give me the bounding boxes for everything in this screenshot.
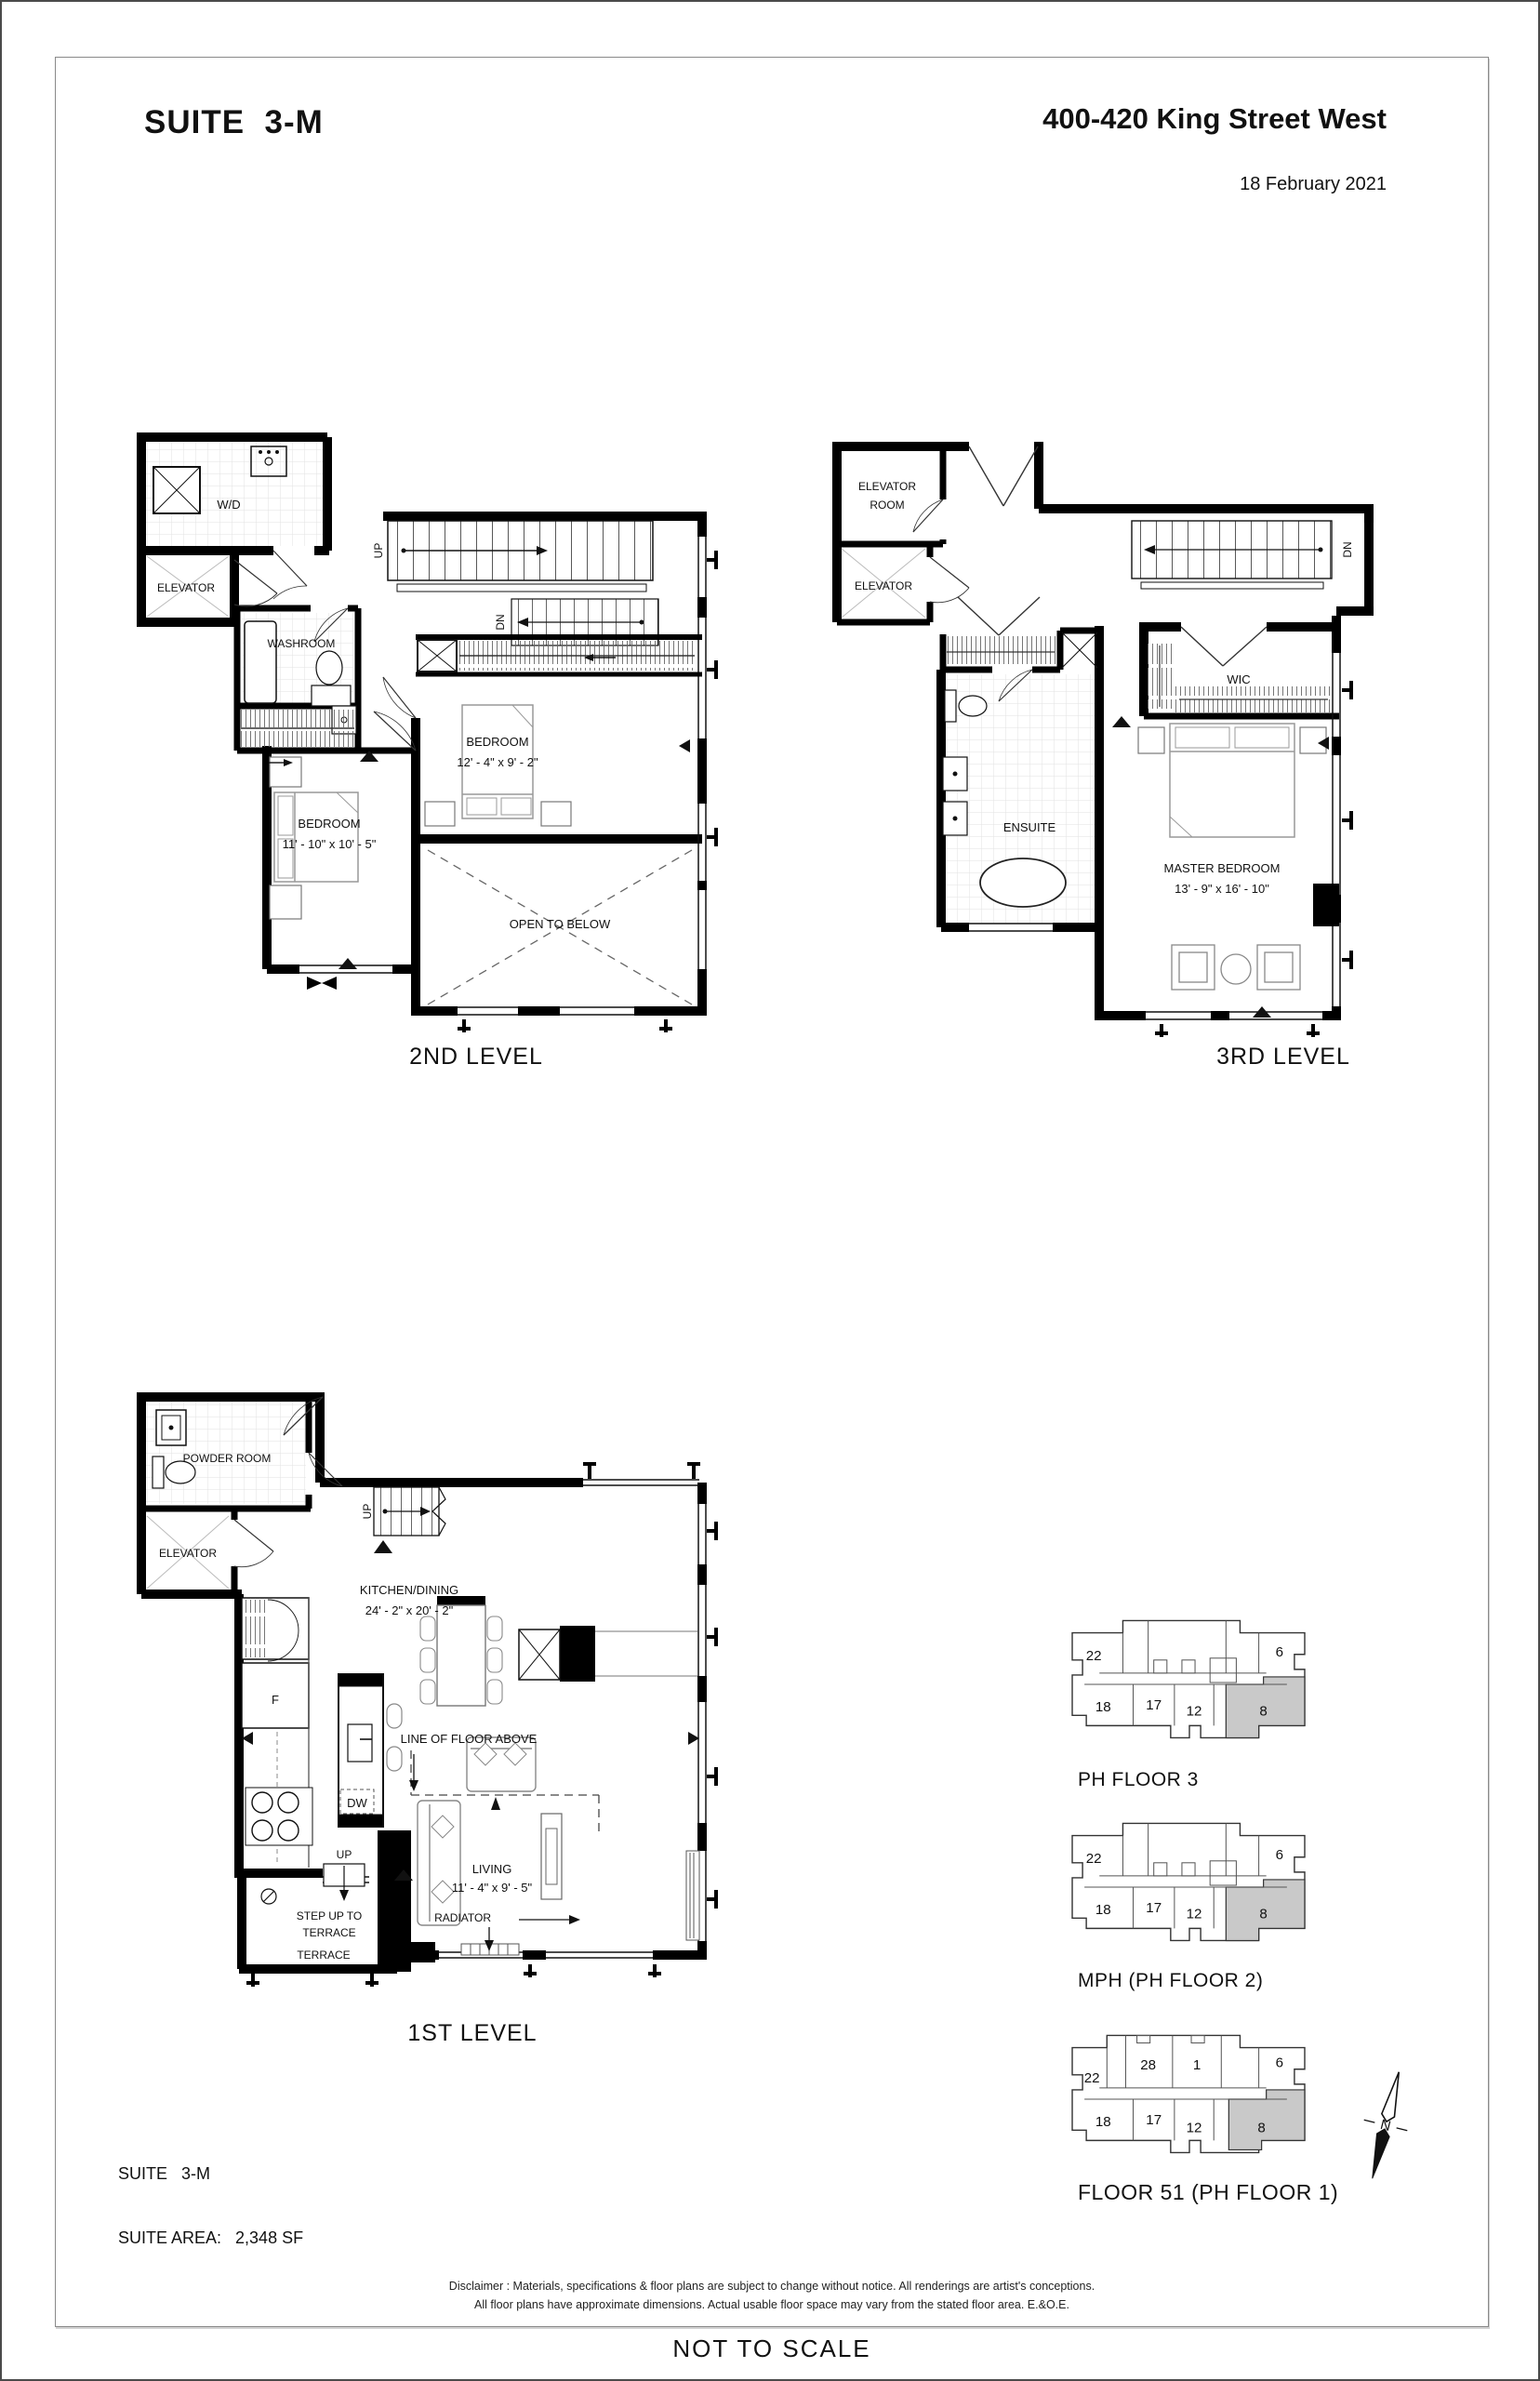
dw-label: DW [347,1796,367,1810]
hall-closet-3rd [945,632,1097,668]
stairs-dn-label-3rd: DN [1341,541,1354,557]
keyplan-label-ph-floor-3: PH FLOOR 3 [1078,1769,1199,1791]
bedroom2-label: BEDROOM [466,735,528,749]
washroom-label: WASHROOM [268,637,336,650]
mullion-marks-1st [246,1462,718,1987]
ensuite-label: ENSUITE [1003,820,1056,834]
step-terrace-label-1: STEP UP TO [297,1909,362,1922]
corner-column [411,1942,435,1962]
master-bedroom-dims: 13' - 9" x 16' - 10" [1175,882,1269,896]
floorplan-page: SUITE 3-M 400-420 King Street West 18 Fe… [0,0,1540,2381]
keyplan-label-floor-51: FLOOR 51 (PH FLOOR 1) [1078,2180,1338,2205]
terrace-column [378,1830,411,1972]
suite-info-line2: SUITE AREA: 2,348 SF [118,2228,303,2249]
floor-plan-3rd-level: DN [811,420,1425,1071]
bedroom1-label: BEDROOM [298,817,360,831]
level-title-3rd: 3RD LEVEL [1144,1044,1423,1071]
closet-2nd-left [241,710,354,747]
keyplan-floor-51: 22 28 1 6 18 17 12 8 [1071,2033,1306,2161]
kp3-unit-6: 6 [1276,2055,1283,2071]
radiator-label: RADIATOR [434,1911,491,1924]
terrace-label: TERRACE [297,1949,350,1962]
oven [519,1626,697,1682]
disclaimer-line1: Disclaimer : Materials, specifications &… [2,2277,1540,2295]
disclaimer: Disclaimer : Materials, specifications &… [2,2277,1540,2314]
level-title-1st: 1ST LEVEL [333,2020,612,2047]
kp3-unit-22: 22 [1084,2070,1100,2086]
kp3-unit-8: 8 [1257,2120,1265,2135]
elevator-3rd [842,499,969,618]
plan-date: 18 February 2021 [1240,174,1387,195]
kp3-unit-28: 28 [1140,2057,1156,2073]
disclaimer-line2: All floor plans have approximate dimensi… [2,2295,1540,2314]
stairs-dn-3rd: DN [1132,521,1354,589]
bedroom1-dims: 11' - 10" x 10' - 5" [283,837,377,851]
suite-title: SUITE 3-M [144,104,324,141]
step-up-label: UP [337,1848,352,1861]
floor-plan-2nd-level: UP DN [123,420,727,1071]
kp3-unit-1: 1 [1193,2057,1201,2073]
north-arrow-icon: N [1352,2068,1419,2182]
kitchen-dims: 24' - 2" x 20' - 2" [365,1603,454,1617]
kp1-unit-18: 18 [1095,1699,1111,1715]
stairs-dn-label-2nd: DN [494,614,507,630]
powder-room-label: POWDER ROOM [183,1452,272,1465]
kp1-unit-22: 22 [1086,1648,1102,1664]
kitchen-label: KITCHEN/DINING [360,1583,458,1597]
fridge-label: F [272,1693,279,1707]
kp2-unit-6: 6 [1276,1847,1283,1863]
master-bedroom-label: MASTER BEDROOM [1164,861,1281,875]
kp1-unit-12: 12 [1187,1703,1202,1719]
elevator-room-label-1: ELEVATOR [858,480,916,493]
master-bed [1138,724,1326,837]
wd-label: W/D [217,498,240,512]
master-sitting-area [1172,945,1300,990]
line-above-label: LINE OF FLOOR ABOVE [401,1732,538,1746]
open-below-label: OPEN TO BELOW [510,917,611,931]
keyplan-mph: 22 6 18 17 12 8 [1071,1821,1306,1949]
suite-info: SUITE 3-M SUITE AREA: 2,348 SF [118,2121,303,2292]
wic-label: WIC [1227,672,1250,686]
building-address: 400-420 King Street West [1042,102,1387,136]
step-terrace-label-2: TERRACE [302,1926,355,1939]
kp2-unit-8: 8 [1259,1906,1267,1922]
stairs-up-label-1st: UP [361,1504,374,1520]
kp3-unit-18: 18 [1095,2114,1111,2130]
living-label: LIVING [472,1862,512,1876]
level-title-2nd: 2ND LEVEL [337,1044,616,1071]
north-label: N [1379,2117,1393,2135]
keyplan-ph-floor-3: 22 6 18 17 12 8 [1071,1618,1306,1746]
kp3-unit-17: 17 [1146,2112,1162,2128]
elevator-label-2nd: ELEVATOR [157,581,215,594]
bedroom2-dims: 12' - 4" x 9' - 2" [457,755,538,769]
stairs-up-1st: UP [361,1487,445,1553]
kp2-unit-12: 12 [1187,1906,1202,1922]
kp3-unit-12: 12 [1187,2120,1202,2135]
kp1-unit-8: 8 [1259,1703,1267,1719]
kp2-unit-22: 22 [1086,1851,1102,1867]
stairs-up-2nd: UP [372,521,653,592]
suite-info-line1: SUITE 3-M [118,2163,303,2185]
closet-2nd-right [416,637,702,674]
kp1-unit-17: 17 [1146,1697,1162,1713]
kp1-unit-6: 6 [1276,1644,1283,1660]
not-to-scale-label: NOT TO SCALE [2,2334,1540,2363]
keyplan-label-mph: MPH (PH FLOOR 2) [1078,1970,1263,1992]
elevator-label-1st: ELEVATOR [159,1547,217,1560]
kp2-unit-18: 18 [1095,1902,1111,1918]
floor-plan-1st-level: UP [118,1364,732,1997]
living-furniture [418,1737,562,1925]
stairs-up-label-2nd: UP [372,543,385,559]
elevator-label-3rd: ELEVATOR [855,579,912,592]
living-dims: 11' - 4" x 9' - 5" [452,1881,533,1895]
kp2-unit-17: 17 [1146,1900,1162,1916]
elevator-room-label-2: ROOM [870,499,904,512]
